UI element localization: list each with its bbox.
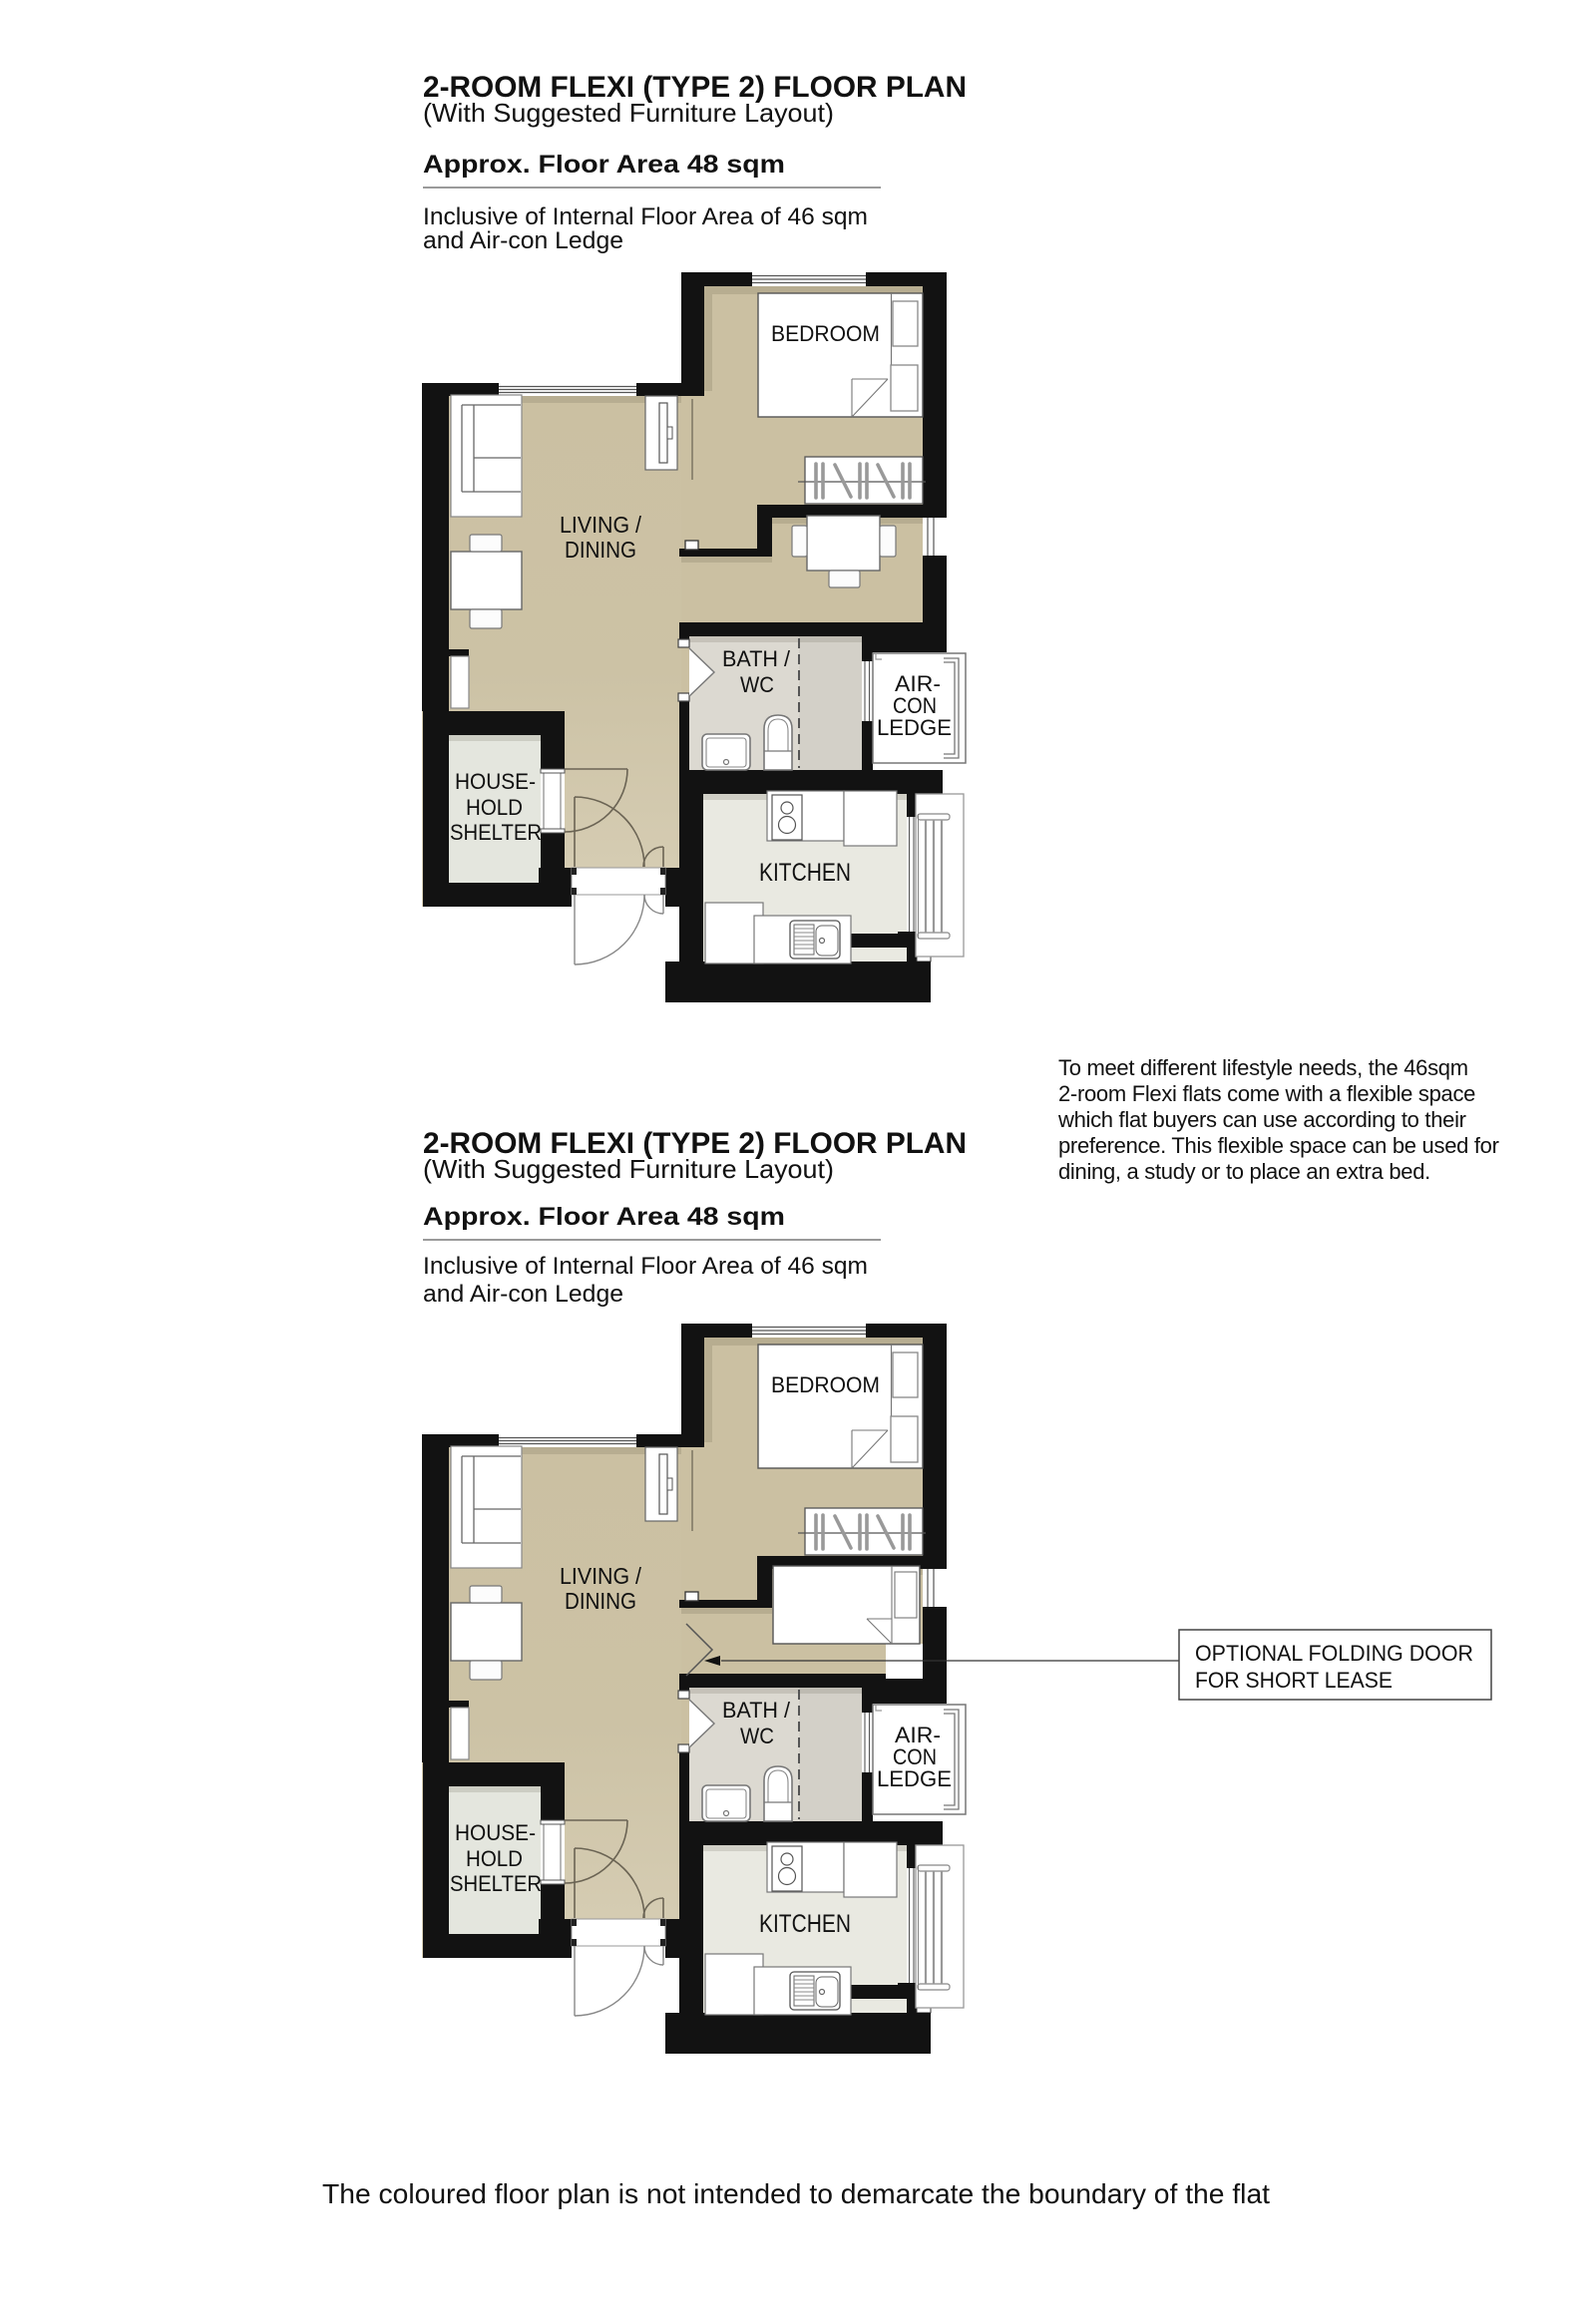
- svg-text:The coloured floor plan is not: The coloured floor plan is not intended …: [322, 2178, 1270, 2209]
- svg-text:2-room Flexi flats come with a: 2-room Flexi flats come with a flexible …: [1058, 1081, 1475, 1106]
- svg-text:Approx. Floor Area 48 sqm: Approx. Floor Area 48 sqm: [423, 1203, 785, 1231]
- svg-text:preference. This flexible spac: preference. This flexible space can be u…: [1058, 1133, 1499, 1158]
- svg-text:dining, a study or to place an: dining, a study or to place an extra bed…: [1058, 1159, 1430, 1184]
- svg-text:and Air-con Ledge: and Air-con Ledge: [423, 227, 623, 254]
- svg-text:(With Suggested Furniture Layo: (With Suggested Furniture Layout): [423, 98, 834, 128]
- svg-text:FOR SHORT LEASE: FOR SHORT LEASE: [1195, 1668, 1393, 1693]
- svg-text:which flat buyers can use acco: which flat buyers can use according to t…: [1057, 1107, 1466, 1132]
- svg-text:To meet different lifestyle ne: To meet different lifestyle needs, the 4…: [1058, 1055, 1468, 1080]
- svg-text:Approx. Floor Area 48 sqm: Approx. Floor Area 48 sqm: [423, 151, 785, 179]
- svg-text:Inclusive of Internal Floor Ar: Inclusive of Internal Floor Area of 46 s…: [423, 203, 868, 230]
- svg-text:and Air-con Ledge: and Air-con Ledge: [423, 1281, 623, 1308]
- svg-text:Inclusive of Internal Floor Ar: Inclusive of Internal Floor Area of 46 s…: [423, 1253, 868, 1280]
- svg-text:OPTIONAL FOLDING DOOR: OPTIONAL FOLDING DOOR: [1195, 1641, 1473, 1666]
- svg-text:(With Suggested Furniture Layo: (With Suggested Furniture Layout): [423, 1154, 834, 1184]
